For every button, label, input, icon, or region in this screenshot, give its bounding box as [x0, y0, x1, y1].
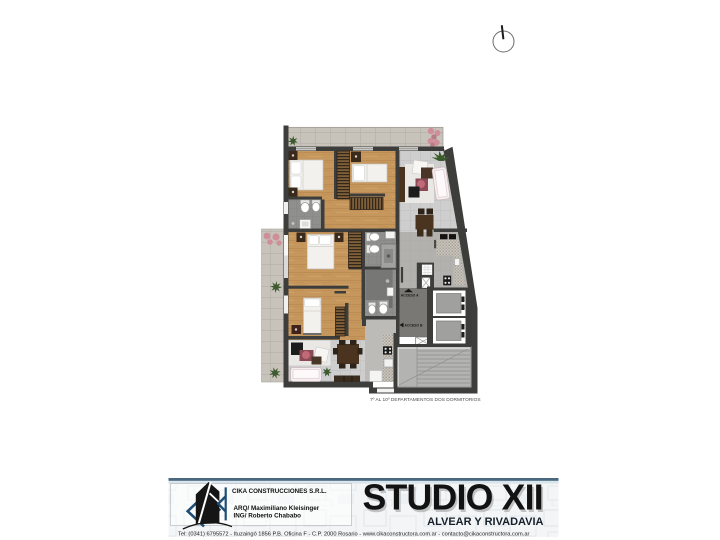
- svg-text:CIKA CONSTRUCCIONES S.R.L.: CIKA CONSTRUCCIONES S.R.L.: [232, 488, 327, 495]
- svg-text:7º AL 10º DEPARTAMENTOS DOS DO: 7º AL 10º DEPARTAMENTOS DOS DORMITORIOS: [370, 397, 481, 403]
- svg-text:ARQ/ Maximiliano Kleisinger: ARQ/ Maximiliano Kleisinger: [234, 505, 320, 512]
- svg-text:STUDIO XII: STUDIO XII: [363, 478, 543, 518]
- svg-text:Tel: (0341) 6795572 - Ituzain: Tel: (0341) 6795572 - Ituzaingó 1856 P.B…: [178, 531, 530, 537]
- svg-text:ACCESO B: ACCESO B: [405, 324, 423, 328]
- svg-text:ACCESO A: ACCESO A: [401, 293, 419, 297]
- svg-text:ALVEAR Y RIVADAVIA: ALVEAR Y RIVADAVIA: [427, 516, 543, 528]
- svg-text:ING/ Roberto Chababo: ING/ Roberto Chababo: [234, 512, 302, 519]
